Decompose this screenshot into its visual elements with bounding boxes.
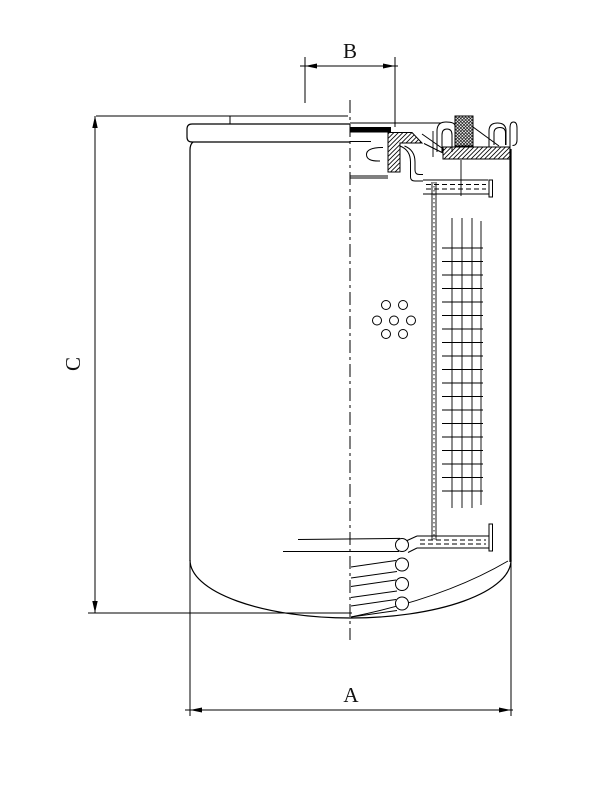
- spring-coil-3: [396, 578, 409, 591]
- dim-a-arrow-left: [190, 708, 202, 713]
- perforation-holes: [373, 301, 416, 339]
- can-bottom-inner: [351, 561, 508, 617]
- retainer-plate-hatched: [443, 147, 510, 159]
- lid-contour-diagonal-2: [424, 144, 443, 154]
- anti-drainback-lip: [367, 148, 384, 162]
- spring-coil-4: [396, 597, 409, 610]
- seal-gasket: [455, 116, 473, 146]
- filter-element: [405, 180, 493, 553]
- head-assembly: [350, 116, 517, 196]
- dim-a-arrow-right: [499, 708, 511, 713]
- can-rim-flare: [190, 142, 193, 150]
- dim-b-arrow-right: [383, 64, 395, 69]
- bottom-cap-rim: [489, 524, 493, 551]
- media-pleat-lines: [442, 248, 483, 491]
- can-top-rim: [187, 124, 350, 142]
- thread-boss-hatched: [388, 133, 422, 173]
- thread-band: [350, 127, 391, 133]
- dimension-b: B: [300, 39, 398, 127]
- drawing-page: B C A: [0, 0, 612, 792]
- spring-coil-2: [396, 558, 409, 571]
- dim-c-arrow-top: [92, 116, 97, 128]
- dim-a-label: A: [343, 683, 359, 707]
- rolled-seam-inner: [494, 128, 506, 146]
- pleated-media: [442, 218, 483, 508]
- rolled-seam-hook: [510, 122, 517, 150]
- dimension-c: C: [61, 116, 352, 613]
- coil-spring: [283, 538, 409, 617]
- bottom-end-cap: [405, 524, 493, 553]
- filter-section-drawing: B C A: [0, 0, 612, 792]
- dimension-a: A: [185, 562, 513, 716]
- top-end-cap: [423, 180, 493, 197]
- spring-coil-1: [396, 539, 409, 552]
- center-tube: [432, 182, 436, 540]
- dim-b-label: B: [343, 39, 357, 63]
- spout-inner: [405, 146, 424, 175]
- dim-b-arrow-left: [305, 64, 317, 69]
- dim-c-arrow-bottom: [92, 601, 97, 613]
- top-cap-rim: [489, 180, 493, 197]
- rolled-seam-outer: [489, 123, 506, 147]
- dim-c-label: C: [61, 357, 85, 371]
